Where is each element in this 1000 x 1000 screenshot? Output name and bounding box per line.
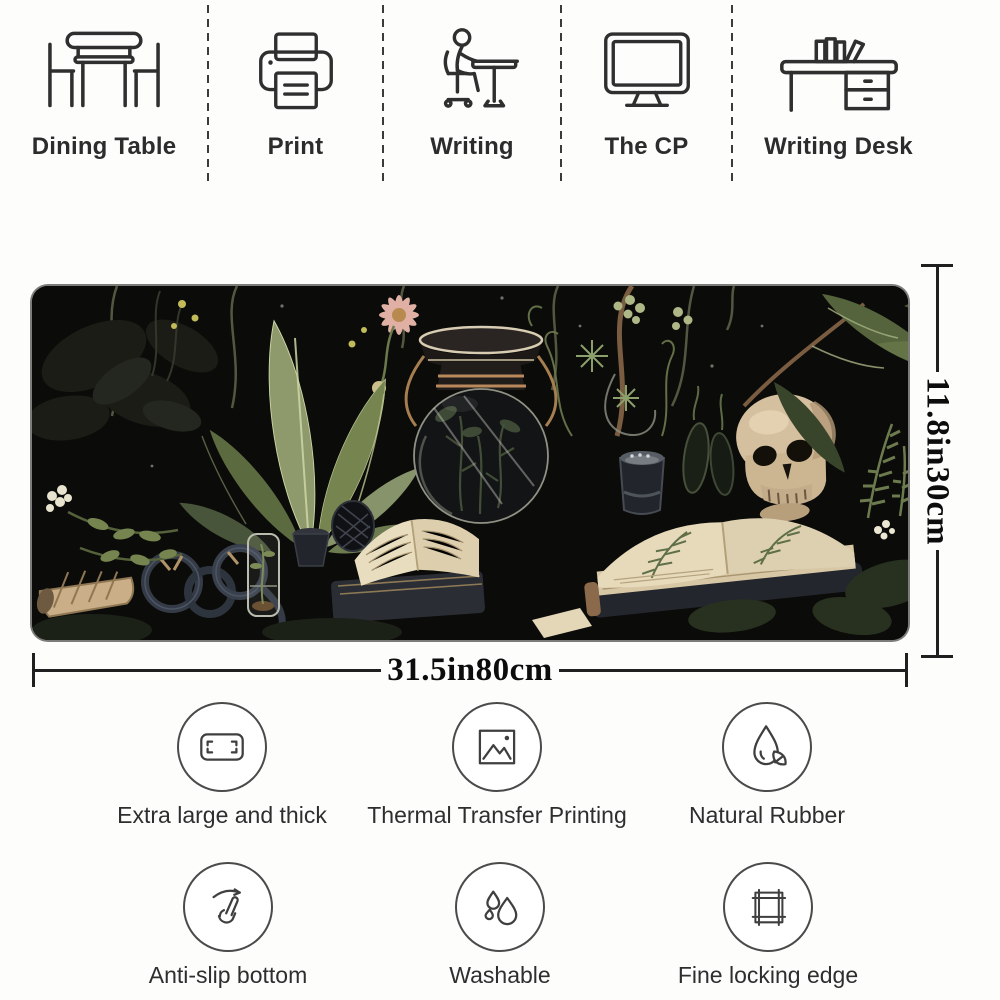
glass-jar — [406, 327, 556, 523]
feature-extra-large: Extra large and thick — [62, 702, 382, 829]
use-case-writing-desk: Writing Desk — [732, 0, 945, 161]
use-case-writing: Writing — [383, 0, 561, 161]
use-case-the-cp: The CP — [561, 0, 732, 161]
width-dimension-label: 31.5in80cm — [381, 652, 558, 689]
use-case-label: The CP — [605, 133, 689, 161]
water-drops-icon — [455, 862, 545, 952]
dimension-cap — [921, 655, 953, 658]
use-case-dining-table: Dining Table — [0, 0, 208, 161]
use-case-label: Dining Table — [32, 133, 177, 161]
glass-tube — [248, 534, 279, 616]
rubber-drop-leaf-icon — [722, 702, 812, 792]
feature-label: Extra large and thick — [117, 802, 327, 829]
use-case-label: Print — [268, 133, 324, 161]
desk-mat-artwork — [32, 286, 908, 640]
product-infographic: Dining Table Print — [0, 0, 1000, 1000]
writing-desk-icon — [760, 24, 918, 118]
feature-label: Fine locking edge — [678, 962, 858, 989]
feature-label: Thermal Transfer Printing — [367, 802, 626, 829]
feature-label: Anti-slip bottom — [149, 962, 308, 989]
dimension-line — [35, 669, 381, 672]
use-case-label: Writing — [430, 133, 514, 161]
dimension-line — [936, 267, 939, 372]
mat-size-icon — [177, 702, 267, 792]
hand-swipe-icon — [183, 862, 273, 952]
dark-cup — [620, 451, 664, 514]
dimension-line — [936, 550, 939, 655]
feature-natural-rubber: Natural Rubber — [607, 702, 927, 829]
use-case-row: Dining Table Print — [0, 0, 1000, 196]
dimension-cap — [905, 653, 908, 687]
computer-monitor-icon — [584, 24, 710, 118]
dining-table-icon — [29, 24, 179, 118]
feature-label: Natural Rubber — [689, 802, 845, 829]
dimension-line — [559, 669, 905, 672]
printer-icon — [241, 24, 351, 118]
height-dimension-label: 11.8in30cm — [919, 372, 956, 551]
feature-label: Washable — [449, 962, 550, 989]
height-dimension: 11.8in30cm — [918, 264, 956, 658]
feature-locking-edge: Fine locking edge — [608, 862, 928, 989]
image-print-icon — [452, 702, 542, 792]
desk-mat-image — [32, 286, 908, 640]
use-case-label: Writing Desk — [764, 133, 913, 161]
width-dimension: 31.5in80cm — [32, 651, 908, 689]
writing-person-icon — [416, 24, 528, 118]
locking-edge-icon — [723, 862, 813, 952]
use-case-print: Print — [208, 0, 383, 161]
